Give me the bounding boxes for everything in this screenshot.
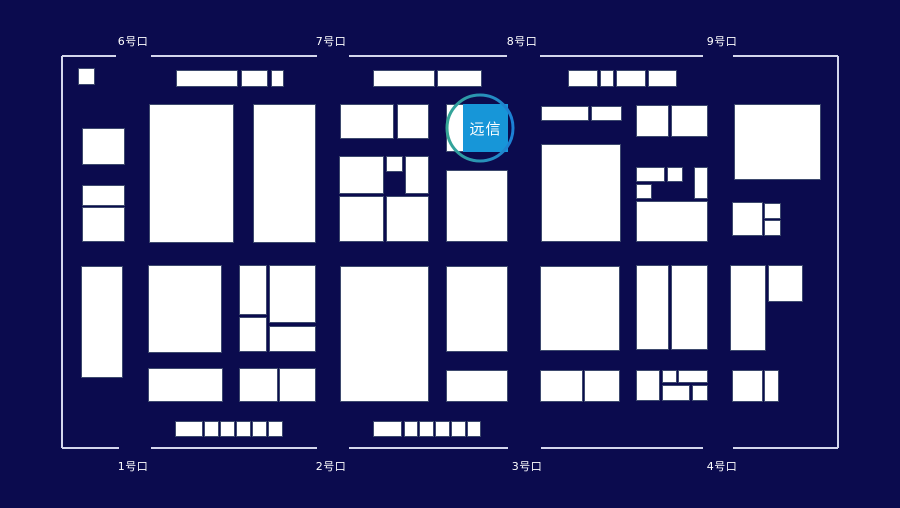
booth (730, 265, 766, 351)
booth (678, 370, 708, 383)
booth (636, 370, 660, 401)
booth (636, 184, 652, 199)
booth (451, 421, 466, 437)
booth (467, 421, 481, 437)
booth (397, 104, 429, 139)
gate-label-top: 7号口 (303, 36, 359, 48)
booth (636, 201, 708, 242)
gate-label-top: 6号口 (105, 36, 161, 48)
booth (671, 105, 708, 137)
booth (252, 421, 267, 437)
booth (268, 421, 283, 437)
booth (340, 104, 394, 139)
booth (764, 370, 779, 402)
booth (78, 68, 95, 85)
booth (279, 368, 316, 402)
booth (764, 220, 781, 236)
gate-label-bottom: 4号口 (694, 461, 750, 473)
booth-layer (0, 0, 900, 508)
booth (404, 421, 418, 437)
booth (600, 70, 614, 87)
gate-label-top: 8号口 (494, 36, 550, 48)
booth (671, 265, 708, 350)
booth (339, 196, 384, 242)
booth (446, 266, 508, 352)
exhibition-floor-map: 6号口7号口8号口9号口1号口2号口3号口4号口 远信 (0, 0, 900, 508)
booth (340, 266, 429, 402)
booth (734, 104, 821, 180)
gate-label-bottom: 2号口 (303, 461, 359, 473)
gate-label-bottom: 3号口 (499, 461, 555, 473)
booth (694, 167, 708, 199)
booth (446, 370, 508, 402)
booth (386, 196, 429, 242)
booth (271, 70, 284, 87)
booth (591, 106, 622, 121)
booth (584, 370, 620, 402)
booth (175, 421, 203, 437)
booth (239, 368, 278, 402)
booth (541, 144, 621, 242)
booth (540, 266, 620, 351)
booth (616, 70, 646, 87)
booth (764, 203, 781, 219)
booth (446, 170, 508, 242)
booth (82, 207, 125, 242)
booth (236, 421, 251, 437)
booth (662, 385, 690, 401)
booth (149, 104, 234, 243)
booth (386, 156, 403, 172)
booth (373, 70, 435, 87)
booth (373, 421, 402, 437)
booth (732, 370, 763, 402)
booth (241, 70, 268, 87)
booth (568, 70, 598, 87)
booth (662, 370, 677, 383)
booth (82, 185, 125, 206)
booth (636, 105, 669, 137)
booth (176, 70, 238, 87)
booth (339, 156, 384, 194)
booth (435, 421, 450, 437)
gate-label-top: 9号口 (694, 36, 750, 48)
booth (239, 265, 267, 315)
booth (204, 421, 219, 437)
booth (636, 265, 669, 350)
booth (81, 266, 123, 378)
booth (667, 167, 683, 182)
booth (541, 106, 589, 121)
booth (239, 317, 267, 352)
booth (419, 421, 434, 437)
booth (636, 167, 665, 182)
booth (732, 202, 763, 236)
booth (220, 421, 235, 437)
booth (148, 368, 223, 402)
booth (82, 128, 125, 165)
booth (648, 70, 677, 87)
highlighted-booth-label: 远信 (469, 118, 501, 139)
booth (540, 370, 583, 402)
booth (437, 70, 482, 87)
booth (269, 326, 316, 352)
booth (768, 265, 803, 302)
booth (692, 385, 708, 401)
booth (269, 265, 316, 323)
gate-label-bottom: 1号口 (105, 461, 161, 473)
booth (253, 104, 316, 243)
booth (405, 156, 429, 194)
highlighted-booth-marker[interactable]: 远信 (463, 104, 508, 152)
booth (148, 265, 222, 353)
